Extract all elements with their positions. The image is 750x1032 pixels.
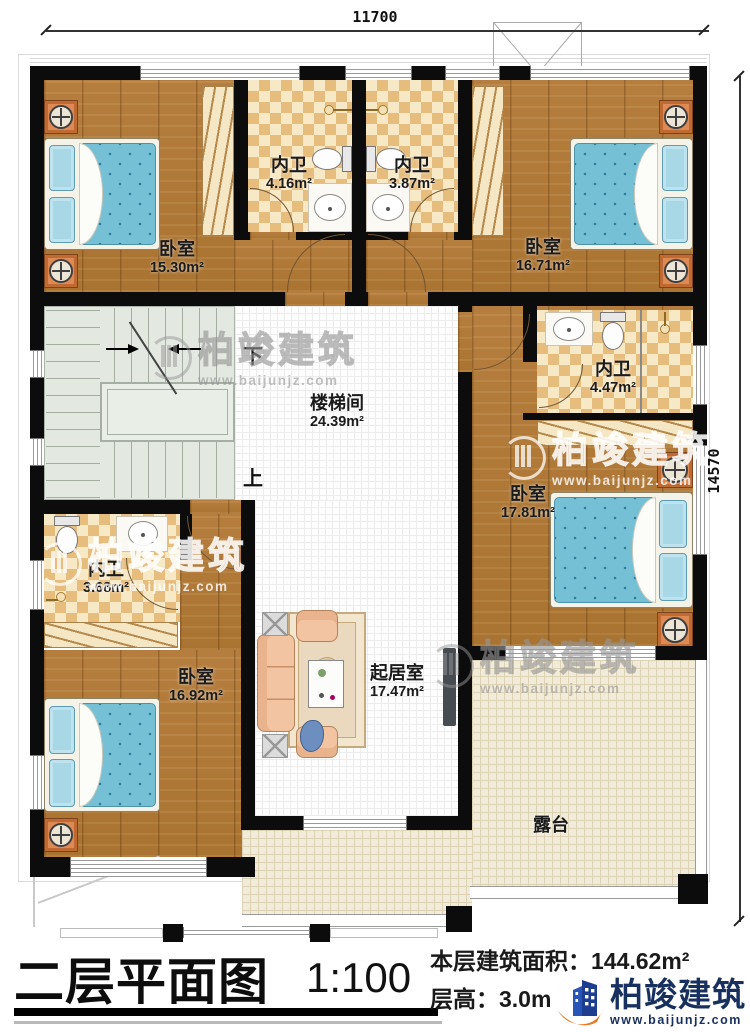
bed — [570, 138, 693, 250]
lamp-icon — [49, 105, 73, 129]
stair-arrow-left — [168, 344, 179, 354]
room-name: 起居室 — [370, 664, 424, 684]
room-area: 16.71m² — [516, 258, 570, 275]
door-opening — [368, 292, 428, 306]
stair-down-label: 下 — [243, 340, 263, 369]
wardrobe — [537, 420, 693, 446]
room-label-stair-hall: 楼梯间 24.39m² — [310, 394, 364, 430]
room-label-terrace: 露台 — [533, 816, 569, 836]
room-area: 16.92m² — [169, 688, 223, 705]
bed — [550, 492, 693, 608]
room-area: 4.47m² — [590, 380, 636, 397]
brand-website: www.baijunjz.com — [610, 1013, 746, 1027]
stair-up-label: 上 — [243, 462, 263, 491]
sofa — [257, 634, 295, 732]
wall-east-spine — [458, 306, 472, 830]
window — [693, 345, 707, 405]
room-name: 卧室 — [516, 238, 570, 258]
room-name: 露台 — [533, 816, 569, 836]
eave-line — [30, 62, 707, 63]
room-area: 3.87m² — [389, 176, 435, 193]
room-name: 内卫 — [83, 560, 129, 580]
window — [345, 66, 412, 80]
coffee-table — [308, 660, 344, 708]
wardrobe — [202, 86, 234, 236]
terrace-railing-south — [242, 914, 452, 927]
terrace-floor-east — [472, 660, 695, 886]
side-table — [262, 734, 288, 758]
lamp-icon — [49, 259, 73, 283]
porch-column — [163, 924, 183, 942]
shower-hose — [46, 599, 58, 601]
bed-pillow — [659, 500, 687, 548]
room-label-bath-r: 内卫 4.47m² — [590, 360, 636, 396]
dimension-line-right — [739, 76, 741, 922]
window-bedroom-r-south — [505, 646, 656, 660]
toilet-tank — [366, 146, 376, 172]
door-opening — [408, 232, 454, 240]
dimension-line-top — [46, 30, 709, 32]
room-name: 内卫 — [389, 156, 435, 176]
nightstand — [44, 100, 78, 134]
toilet-tank — [600, 312, 626, 322]
terrace-column — [446, 906, 472, 932]
room-name: 卧室 — [501, 485, 555, 505]
tv — [443, 648, 456, 726]
bed-pillow — [49, 145, 75, 191]
room-label-living: 起居室 17.47m² — [370, 664, 424, 700]
sliding-door-terrace — [303, 816, 407, 830]
bed — [44, 138, 160, 250]
wardrobe — [44, 622, 178, 648]
dimension-label-right: 14570 — [705, 421, 723, 521]
room-name: 卧室 — [150, 240, 204, 260]
floor-plan-sheet: 11700 14570 下 上 — [0, 0, 750, 1032]
toilet-icon — [602, 322, 624, 350]
nightstand — [44, 254, 78, 288]
sink-icon — [553, 317, 585, 341]
wall-bath-bedroomtr — [458, 66, 472, 240]
sheet-title: 二层平面图 — [14, 942, 269, 1014]
table-decor — [318, 669, 326, 677]
room-area: 17.47m² — [370, 684, 424, 701]
window — [30, 350, 44, 378]
title-underline-light — [14, 1021, 442, 1024]
room-label-bedroom-bl: 卧室 16.92m² — [169, 668, 223, 704]
toilet-tank — [54, 516, 80, 526]
room-name: 卧室 — [169, 668, 223, 688]
room-area: 4.16m² — [266, 176, 312, 193]
shower-partition — [640, 310, 642, 413]
door-opening — [458, 312, 472, 372]
building-area-text: 本层建筑面积：144.62m² — [430, 942, 689, 976]
door-opening — [190, 500, 241, 514]
wall-bath-r-south — [523, 413, 693, 420]
room-area: 17.81m² — [501, 505, 555, 522]
eave-line — [30, 58, 707, 59]
bed-pillow — [659, 553, 687, 601]
lamp-icon — [49, 823, 73, 847]
room-label-bedroom-tl: 卧室 15.30m² — [150, 240, 204, 276]
toilet-icon — [56, 526, 78, 554]
window — [30, 560, 44, 610]
sink-icon — [314, 194, 346, 221]
window — [530, 66, 690, 80]
room-name: 楼梯间 — [310, 394, 364, 414]
room-label-bath-t1: 内卫 4.16m² — [266, 156, 312, 192]
wall-between-baths — [352, 66, 366, 306]
floor-height-text: 层高：3.0m — [430, 980, 551, 1014]
wall-living-west — [241, 500, 255, 830]
terrace-railing-south — [470, 886, 682, 899]
room-area: 24.39m² — [310, 414, 364, 431]
sheet-scale: 1:100 — [306, 954, 411, 1002]
table-decor — [319, 693, 324, 698]
porch-column — [310, 924, 330, 942]
lamp-icon — [664, 259, 688, 283]
title-underline — [14, 1008, 438, 1016]
wall-bedroomtl-bath — [234, 66, 248, 240]
bed-pillow — [49, 706, 75, 754]
lamp-icon — [662, 617, 688, 643]
terrace-railing-east — [695, 660, 707, 886]
window — [30, 755, 44, 810]
terrace-floor-south — [242, 830, 472, 914]
nightstand — [659, 100, 693, 134]
room-area: 3.68m² — [83, 580, 129, 597]
window — [70, 857, 207, 877]
nightstand — [44, 818, 78, 852]
window — [445, 66, 500, 80]
porch-outline — [330, 928, 438, 938]
ground-line — [33, 877, 35, 927]
bed — [44, 698, 160, 812]
stair-arrow-right — [128, 344, 139, 354]
stair-landing — [100, 382, 235, 442]
room-name: 内卫 — [266, 156, 312, 176]
stair-treads-side — [46, 308, 100, 498]
sink-icon — [372, 194, 404, 221]
window — [140, 66, 300, 80]
lamp-icon — [662, 457, 688, 483]
table-decor — [330, 695, 335, 700]
door-opening — [250, 232, 296, 240]
porch-window — [183, 927, 310, 938]
lamp-icon — [664, 105, 688, 129]
shower-hose — [664, 312, 666, 326]
room-label-bedroom-tr: 卧室 16.71m² — [516, 238, 570, 274]
bed-pillow — [49, 197, 75, 243]
dimension-label-top: 11700 — [325, 8, 425, 26]
bed-pillow — [662, 145, 688, 191]
side-table — [262, 612, 288, 636]
brand-logo: 柏竣建筑 www.baijunjz.com — [552, 972, 750, 1032]
nightstand — [657, 452, 693, 488]
nightstand — [659, 254, 693, 288]
wardrobe — [472, 86, 504, 236]
window — [30, 438, 44, 466]
bed-pillow — [662, 197, 688, 243]
stair-arrow-line — [179, 348, 201, 350]
terrace-column — [678, 874, 708, 904]
toilet-tank — [342, 146, 352, 172]
brand-name: 柏竣建筑 — [610, 978, 746, 1011]
room-label-bath-t2: 内卫 3.87m² — [389, 156, 435, 192]
room-label-bedroom-r: 卧室 17.81m² — [501, 485, 555, 521]
room-label-bath-bl: 内卫 3.68m² — [83, 560, 129, 596]
room-area: 15.30m² — [150, 260, 204, 277]
porch-outline — [60, 928, 163, 938]
sink-icon — [128, 521, 158, 546]
bed-pillow — [49, 759, 75, 807]
door-opening — [285, 292, 345, 306]
shower-icon — [378, 105, 388, 115]
room-name: 内卫 — [590, 360, 636, 380]
toilet-icon — [312, 148, 342, 170]
stair-arrow-line — [106, 348, 128, 350]
brand-logo-icon — [552, 974, 606, 1030]
armchair — [296, 610, 338, 642]
nightstand — [657, 612, 693, 648]
